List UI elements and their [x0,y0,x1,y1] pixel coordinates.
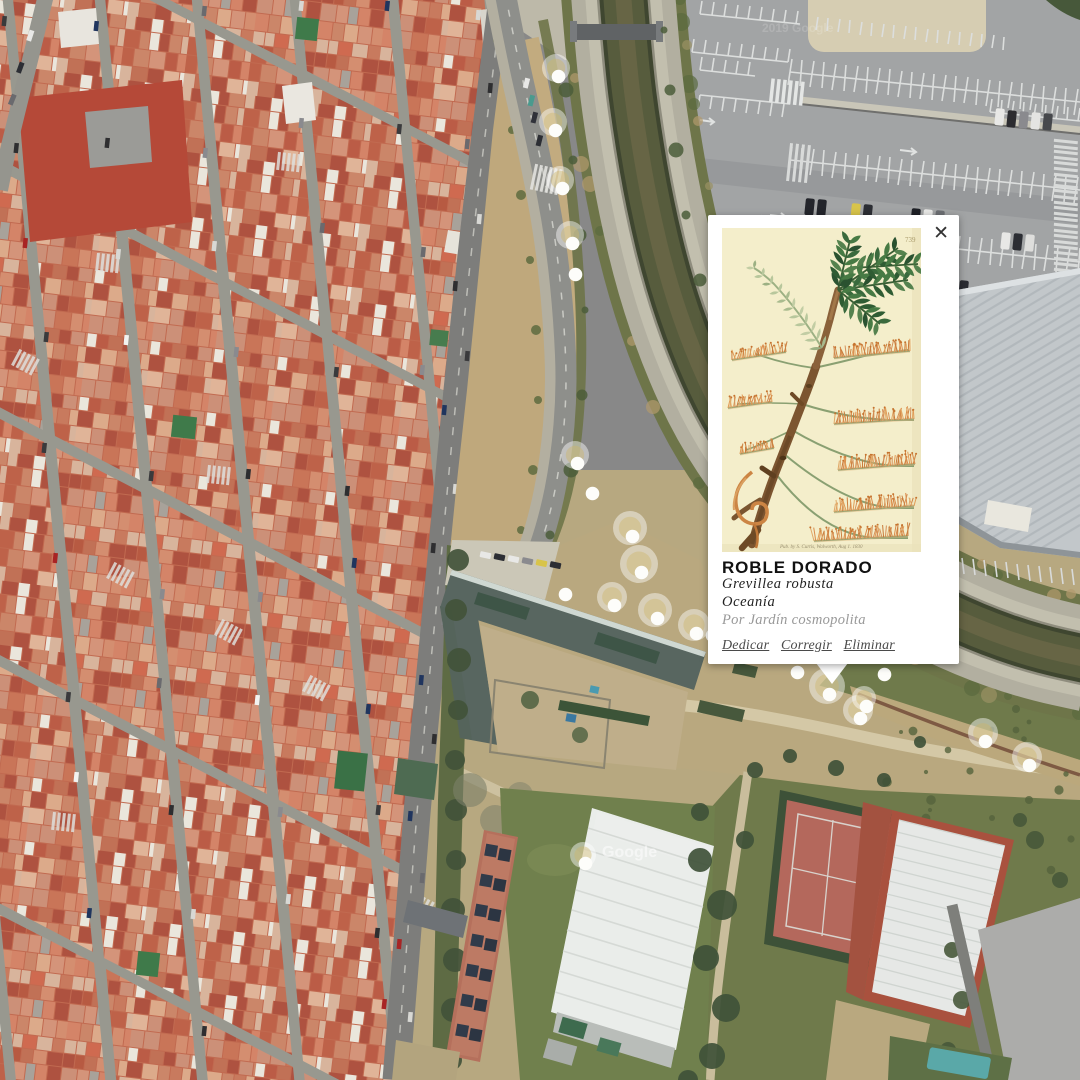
svg-text:Google: Google [602,844,657,861]
svg-text:2019 Google: 2019 Google [762,21,834,35]
svg-text:Pub. by S. Curtis, Walworth, A: Pub. by S. Curtis, Walworth, Aug 1. 1830 [779,545,863,550]
svg-text:739: 739 [905,236,916,244]
